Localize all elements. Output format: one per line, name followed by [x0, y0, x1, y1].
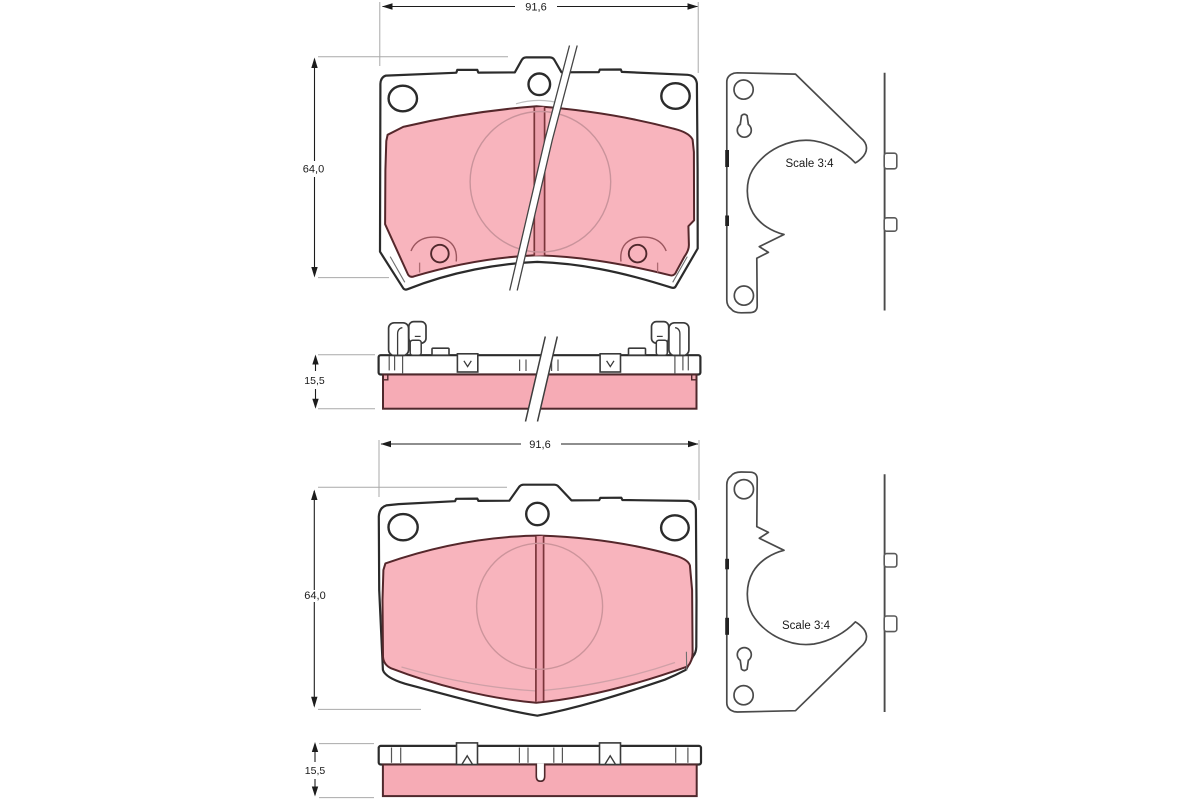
svg-text:Scale 3:4: Scale 3:4 [786, 158, 835, 170]
svg-text:15,5: 15,5 [304, 375, 325, 387]
svg-text:64,0: 64,0 [303, 164, 324, 176]
svg-text:Scale 3:4: Scale 3:4 [782, 620, 831, 632]
svg-text:91,6: 91,6 [525, 2, 546, 14]
svg-text:91,6: 91,6 [529, 439, 550, 451]
svg-text:15,5: 15,5 [305, 765, 326, 777]
svg-text:64,0: 64,0 [304, 590, 325, 602]
